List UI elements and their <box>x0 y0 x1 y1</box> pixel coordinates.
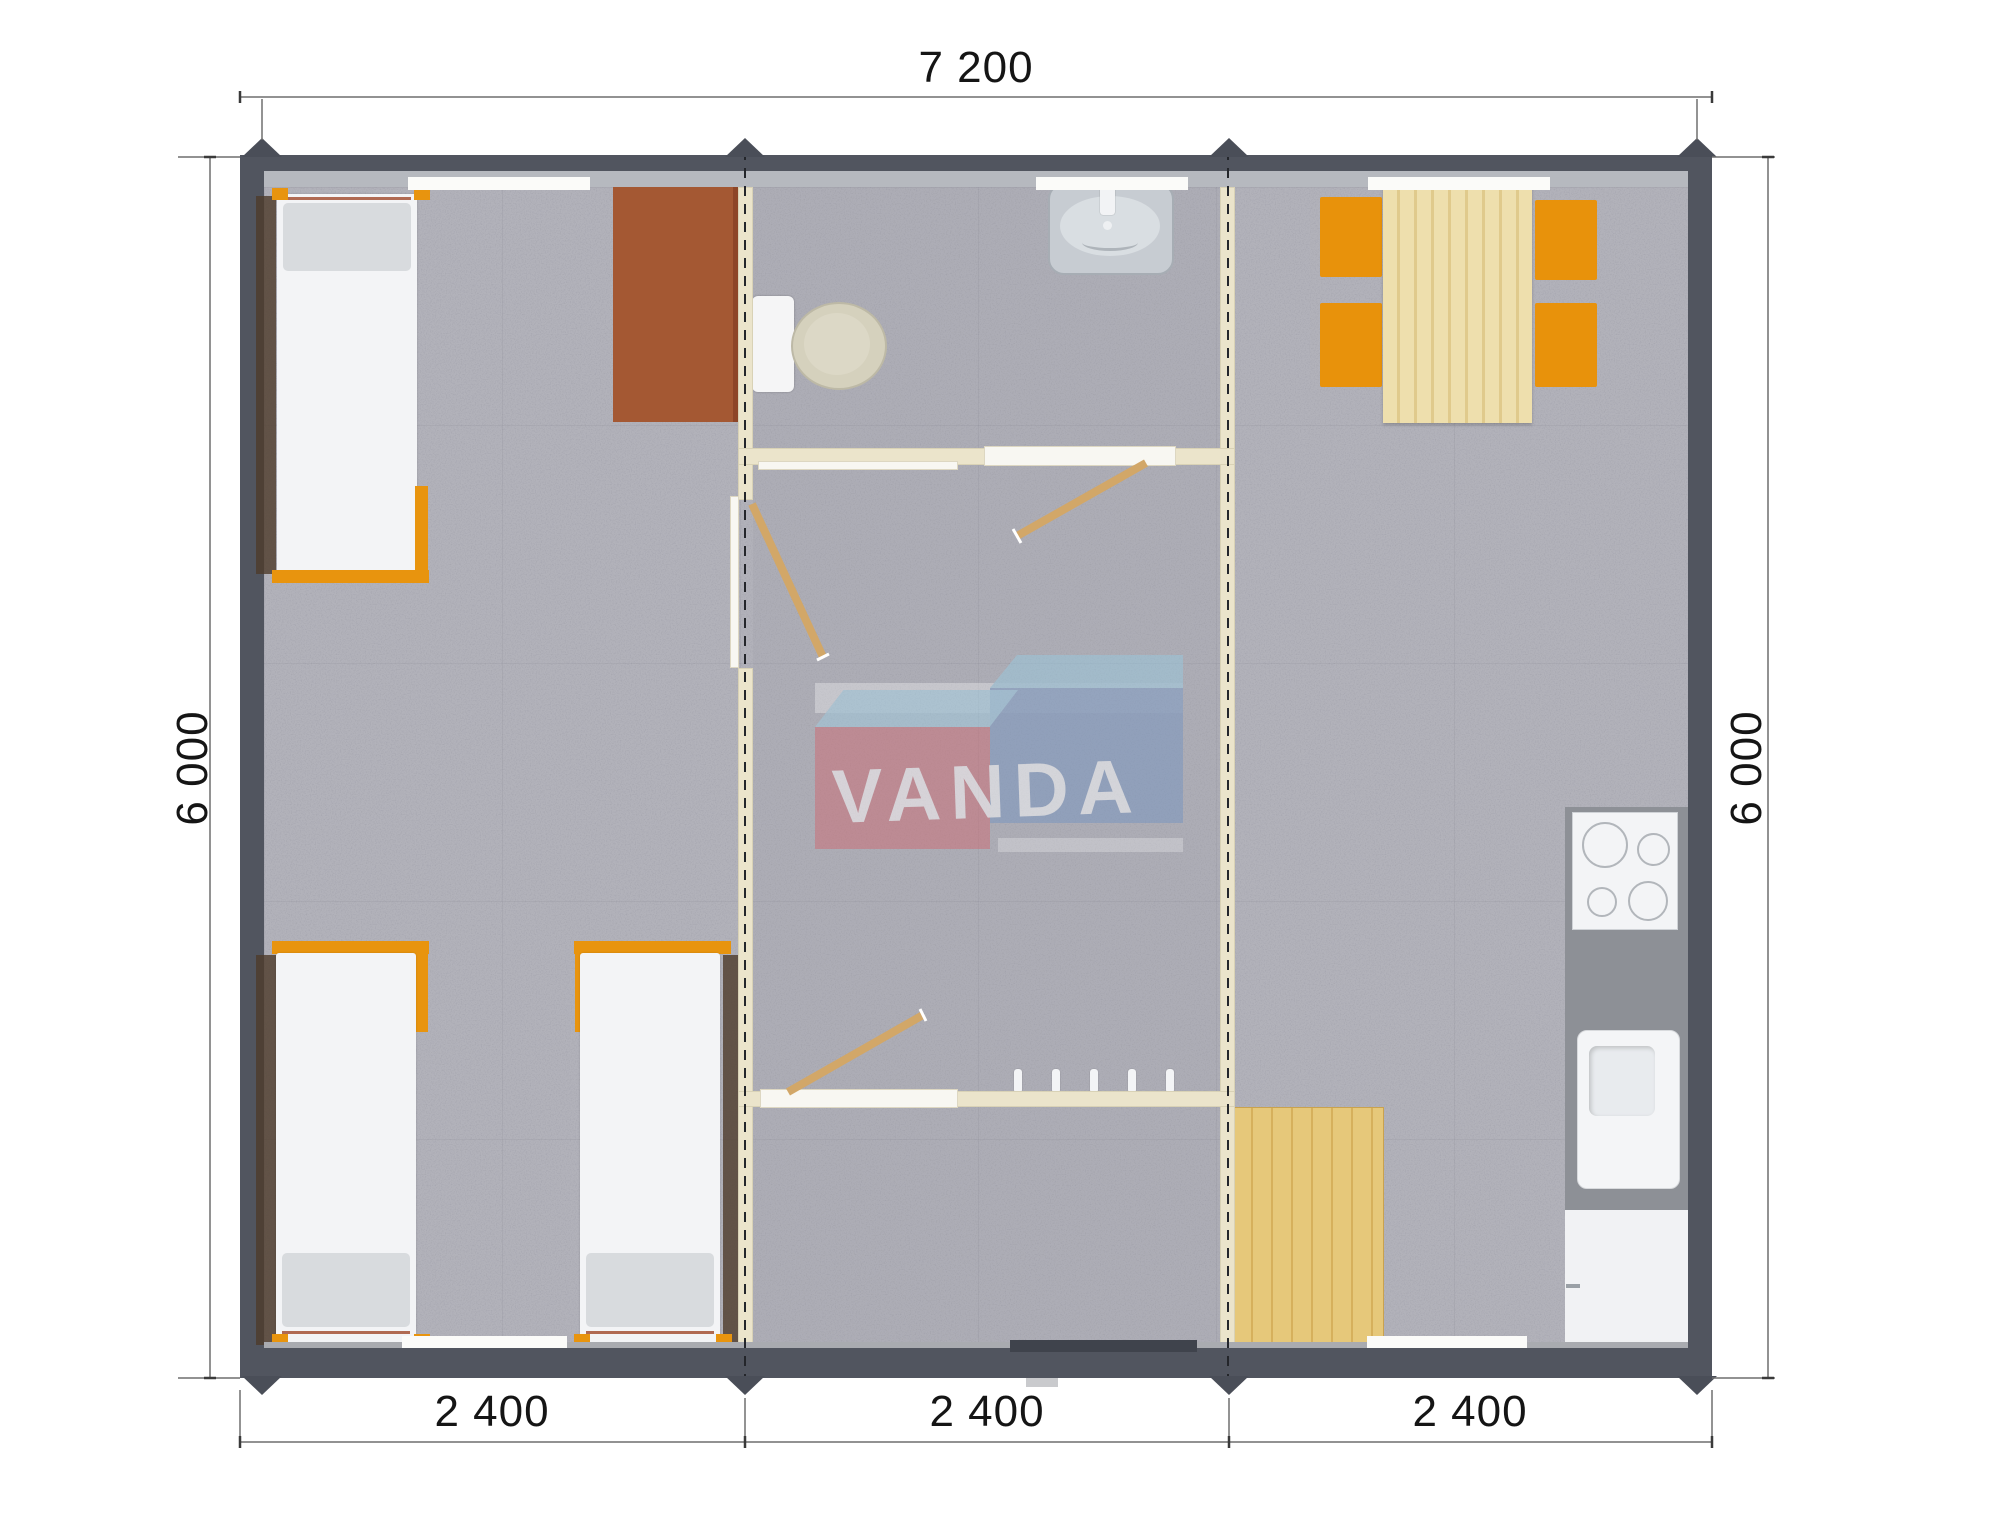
partition-wall-left-lower <box>738 668 753 1348</box>
bed-shadow <box>256 955 276 1345</box>
bed-shadow <box>256 196 276 574</box>
cabinet-handle <box>1566 1284 1580 1288</box>
dining-chair <box>1535 303 1597 387</box>
dimension-bottom-label-3: 2 400 <box>1370 1388 1570 1436</box>
dimension-top-label: 7 200 <box>876 44 1076 92</box>
toilet-tank <box>752 296 794 392</box>
dimension-right-label: 6 000 <box>1695 703 1799 833</box>
window-bottom-left <box>402 1336 567 1348</box>
bed-footline <box>586 1331 714 1334</box>
coat-hook <box>1014 1069 1022 1093</box>
desk <box>613 186 739 422</box>
bed-pillow <box>282 1253 410 1327</box>
bed-pillow <box>283 203 411 271</box>
entry-step <box>1026 1378 1058 1387</box>
bed-footline <box>282 1331 410 1334</box>
bed-frame-corner <box>272 188 288 200</box>
watermark-box-blue-top <box>990 655 1183 688</box>
burner-icon <box>1582 822 1628 868</box>
burner-icon <box>1587 887 1617 917</box>
faucet-knob <box>1103 221 1112 230</box>
coat-hook <box>1090 1069 1098 1093</box>
door-jamb <box>730 496 739 668</box>
window-bottom-right <box>1367 1336 1527 1348</box>
dimension-bottom-label-2: 2 400 <box>887 1388 1087 1436</box>
watermark-text: VANDA <box>831 742 1179 841</box>
partition-wall-right <box>1220 187 1235 1348</box>
base-cabinet <box>1565 1210 1688 1347</box>
dining-chair <box>1320 303 1382 387</box>
entry-mat <box>1233 1107 1384 1347</box>
bed-frame-side <box>415 486 428 576</box>
cooktop <box>1572 812 1678 930</box>
entry-door <box>1010 1340 1197 1352</box>
dimension-left-label: 6 000 <box>141 703 245 833</box>
window-top-right <box>1368 177 1550 190</box>
bed-shadow <box>723 955 739 1345</box>
dining-chair <box>1535 200 1597 280</box>
kitchen-sink-basin <box>1589 1046 1655 1116</box>
coat-hook <box>1128 1069 1136 1093</box>
floor-plan-canvas: VANDA <box>0 0 2000 1537</box>
dining-table <box>1383 185 1532 423</box>
dining-chair <box>1320 197 1382 277</box>
window-top-middle <box>1036 177 1188 190</box>
burner-icon <box>1628 881 1668 921</box>
bed-frame-side <box>415 952 428 1032</box>
bed-frame-foot <box>272 570 429 583</box>
bathroom-wall-face <box>758 461 958 470</box>
coat-hook <box>1166 1069 1174 1093</box>
bathroom-door-panel <box>984 446 1176 466</box>
burner-icon <box>1637 833 1670 866</box>
washbasin-drain-line <box>1082 234 1138 251</box>
watermark-logo: VANDA <box>808 648 1188 860</box>
toilet-seat <box>804 313 870 375</box>
coat-hook <box>1052 1069 1060 1093</box>
hall-door-panel <box>760 1089 958 1108</box>
bed-headline <box>283 197 411 200</box>
watermark-box-red-top <box>815 690 1018 727</box>
window-top-left <box>408 177 590 190</box>
bed-pillow <box>586 1253 714 1327</box>
watermark-band-2 <box>998 838 1183 852</box>
dimension-bottom-label-1: 2 400 <box>392 1388 592 1436</box>
